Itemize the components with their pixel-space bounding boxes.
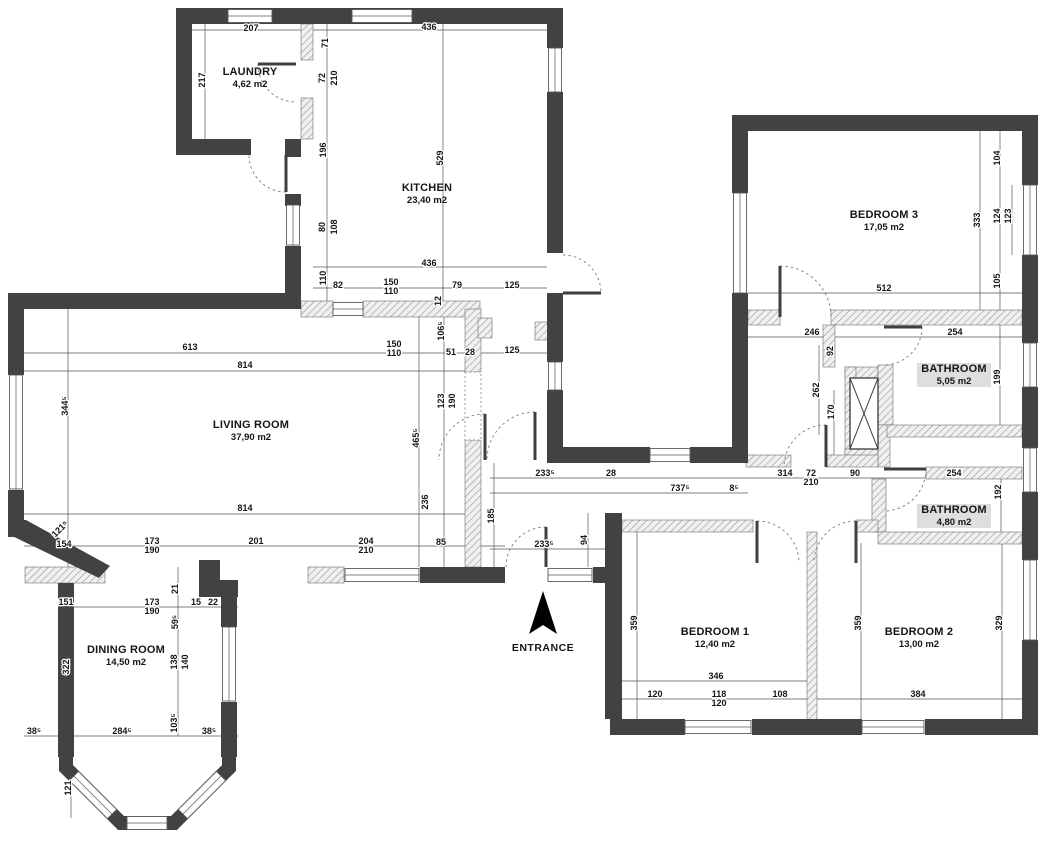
window-frame-line	[74, 776, 112, 814]
door-swing-arc	[757, 521, 799, 563]
dimension-label: 199	[992, 369, 1002, 384]
partition-wall	[308, 567, 344, 583]
dimension-label: 254	[947, 327, 962, 337]
dimension-label: 28	[606, 468, 616, 478]
dimension-label: 123	[1003, 208, 1013, 223]
dimension-label: 210	[358, 545, 373, 555]
structural-wall	[285, 139, 301, 157]
dimension-label: 185	[486, 508, 496, 523]
dimension-label: 465⁵	[411, 428, 421, 447]
dimension-label: 71	[320, 38, 330, 48]
room-area: 4,62 m2	[233, 79, 268, 90]
window	[223, 627, 236, 701]
dimension-label: 333	[972, 212, 982, 227]
window	[10, 375, 23, 489]
room-area: 4,80 m2	[937, 517, 972, 528]
dimension-label: 217	[197, 72, 207, 87]
room-name: BEDROOM 2	[885, 626, 953, 638]
dimension-label: 138	[169, 654, 179, 669]
dimension-label: 120	[647, 689, 662, 699]
structural-wall	[285, 194, 301, 206]
partition-wall	[301, 24, 313, 60]
partition-wall	[878, 365, 893, 425]
partition-wall	[878, 532, 1022, 544]
room-label-kitchen: KITCHEN23,40 m2	[402, 182, 452, 206]
window	[333, 303, 363, 316]
dimension-label: 94	[579, 535, 589, 545]
partition-wall	[746, 455, 791, 467]
structural-wall	[1022, 131, 1038, 185]
dimension-label: 125	[504, 345, 519, 355]
partition-wall	[748, 310, 780, 325]
room-label-bedroom-3: BEDROOM 317,05 m2	[850, 209, 918, 233]
dimension-label: 329	[994, 615, 1004, 630]
dimension-label: 108	[772, 689, 787, 699]
dimension-label: 124	[992, 208, 1002, 223]
window	[287, 205, 300, 245]
window	[345, 569, 419, 582]
partition-wall	[807, 532, 817, 720]
dimension-label: 233⁵	[534, 539, 553, 549]
dimension-label: 38⁵	[202, 726, 216, 736]
window	[650, 449, 690, 462]
window	[1024, 448, 1037, 492]
window	[862, 721, 924, 734]
dimension-label: 12	[433, 296, 443, 306]
dimension-label: 233⁵	[535, 468, 554, 478]
structural-wall	[1022, 492, 1038, 560]
dimension-label: 51	[446, 347, 456, 357]
door-swing-arc	[884, 327, 922, 365]
dimension-label: 384	[910, 689, 925, 699]
structural-wall	[547, 447, 650, 463]
partition-wall	[831, 310, 1022, 325]
structural-wall	[605, 513, 622, 719]
room-area: 23,40 m2	[407, 195, 447, 206]
partition-wall	[301, 98, 313, 139]
dimension-label: 151	[58, 597, 73, 607]
entrance-label: ENTRANCE	[512, 642, 574, 654]
dimension-label: 104	[992, 150, 1002, 165]
room-label-living-room: LIVING ROOM37,90 m2	[213, 419, 289, 443]
dimension-label: 108	[329, 219, 339, 234]
room-label-bedroom-2: BEDROOM 213,00 m2	[885, 626, 953, 650]
room-area: 14,50 m2	[106, 657, 146, 668]
dimension-label: 38⁵	[27, 726, 41, 736]
partition-wall	[622, 520, 753, 532]
dimension-label: 80	[317, 222, 327, 232]
structural-wall	[8, 293, 301, 309]
dimension-label: 190	[447, 393, 457, 408]
dimension-label: 123	[436, 393, 446, 408]
dimension-label: 201	[248, 536, 263, 546]
floor-plan: 2072174367172210196529801081104368215011…	[0, 0, 1046, 850]
room-label-laundry: LAUNDRY4,62 m2	[223, 66, 278, 90]
room-name: LAUNDRY	[223, 66, 278, 78]
dimension-label: 210	[803, 477, 818, 487]
door-swing-arc	[487, 412, 535, 460]
dimension-label: 196	[318, 142, 328, 157]
dimension-label: 436	[421, 22, 436, 32]
window	[352, 10, 412, 23]
window	[127, 817, 167, 830]
structural-wall	[752, 719, 862, 735]
room-area: 12,40 m2	[695, 639, 735, 650]
dimension-label: 236	[420, 494, 430, 509]
door-swing-arc	[814, 521, 856, 563]
structural-wall	[547, 293, 563, 362]
partition-wall	[465, 440, 481, 567]
structural-wall	[176, 139, 251, 155]
dimension-label: 121⁵	[50, 519, 71, 540]
dimension-label: 737⁵	[670, 483, 689, 493]
partition-wall	[887, 425, 1022, 437]
structural-wall	[547, 24, 563, 48]
room-area: 37,90 m2	[231, 432, 271, 443]
wall-opening-dotted	[465, 372, 481, 440]
room-area: 17,05 m2	[864, 222, 904, 233]
room-label-bathroom-1: BATHROOM5,05 m2	[917, 363, 991, 387]
dimension-label: 359	[853, 615, 863, 630]
room-name: LIVING ROOM	[213, 419, 289, 431]
window	[1024, 343, 1037, 387]
window	[548, 569, 592, 582]
dimension-label: 110	[387, 348, 402, 358]
dimension-label: 314	[777, 468, 792, 478]
structural-wall	[593, 567, 610, 583]
window	[1024, 560, 1037, 640]
window	[178, 771, 225, 818]
window	[1024, 185, 1037, 255]
door-swing-arc	[780, 266, 831, 317]
room-label-dining-room: DINING ROOM14,50 m2	[87, 644, 165, 668]
room-name: BATHROOM	[921, 504, 987, 516]
dimension-label: 529	[435, 150, 445, 165]
structural-wall	[176, 24, 192, 155]
dimension-label: 8⁵	[729, 483, 738, 493]
structural-wall	[199, 580, 238, 597]
structural-wall	[732, 131, 748, 193]
dimension-label: 105	[992, 273, 1002, 288]
floor-plan-svg: 2072174367172210196529801081104368215011…	[0, 0, 1046, 850]
room-area: 13,00 m2	[899, 639, 939, 650]
window	[228, 10, 272, 23]
dimension-label: 344⁵	[60, 396, 70, 415]
dimension-label: 90	[850, 468, 860, 478]
dimension-label: 246	[804, 327, 819, 337]
dimension-label: 21	[170, 584, 180, 594]
room-area: 5,05 m2	[937, 376, 972, 387]
dimension-label: 72	[317, 73, 327, 83]
partition-wall	[926, 467, 1022, 479]
dimension-label: 814	[237, 360, 252, 370]
room-name: KITCHEN	[402, 182, 452, 194]
dimension-label: 103⁵	[169, 713, 179, 732]
dimension-label: 210	[329, 70, 339, 85]
partition-wall	[826, 455, 878, 467]
partition-wall	[856, 520, 878, 532]
window-frame-line	[183, 776, 221, 814]
dimension-label: 436	[421, 258, 436, 268]
dimension-label: 59⁵	[170, 615, 180, 629]
dimension-label: 192	[993, 484, 1003, 499]
dimension-label: 284⁵	[112, 726, 131, 736]
partition-wall	[301, 301, 333, 317]
room-name: BEDROOM 3	[850, 209, 918, 221]
north-entrance-arrow-icon	[529, 591, 557, 634]
dimension-label: 359	[629, 615, 639, 630]
dimension-label: 262	[811, 382, 821, 397]
dimension-label: 207	[243, 23, 258, 33]
dimension-label: 154	[56, 539, 71, 549]
room-name: DINING ROOM	[87, 644, 165, 656]
dimension-label: 125	[504, 280, 519, 290]
dimension-label: 322	[61, 659, 71, 674]
dimension-label: 22	[208, 597, 218, 607]
room-name: BEDROOM 1	[681, 626, 749, 638]
dimension-label: 140	[180, 654, 190, 669]
dimension-label: 28	[465, 347, 475, 357]
dimension-label: 190	[144, 545, 159, 555]
door-swing-arc	[563, 255, 601, 293]
dimension-label: 121	[63, 780, 73, 795]
dimension-label: 190	[144, 606, 159, 616]
dimension-label: 170	[826, 404, 836, 419]
structural-wall	[1022, 387, 1038, 448]
window	[69, 771, 116, 818]
dimension-label: 79	[452, 280, 462, 290]
structural-wall	[610, 719, 685, 735]
dimension-label: 613	[182, 342, 197, 352]
dimension-label: 110	[384, 286, 399, 296]
room-name: BATHROOM	[921, 363, 987, 375]
dimension-label: 254	[946, 468, 961, 478]
dimension-label: 512	[876, 283, 891, 293]
dimension-label: 120	[711, 698, 726, 708]
dimension-label: 346	[708, 671, 723, 681]
door-swing-arc	[249, 155, 286, 192]
partition-wall	[363, 301, 480, 317]
structural-wall	[1022, 255, 1038, 343]
dimension-label: 15	[191, 597, 201, 607]
structural-wall	[547, 92, 563, 253]
dimension-label: 82	[333, 280, 343, 290]
dimension-label: 92	[825, 346, 835, 356]
structural-wall	[732, 115, 1038, 131]
dimension-label: 814	[237, 503, 252, 513]
dimension-label: 106⁵	[436, 321, 446, 340]
structural-wall	[420, 567, 505, 583]
structural-wall	[8, 309, 24, 375]
window	[685, 721, 751, 734]
partition-wall	[478, 318, 492, 338]
window	[734, 193, 747, 293]
structural-wall	[925, 719, 1038, 735]
window	[549, 362, 562, 390]
structural-wall	[199, 560, 220, 580]
structural-wall	[221, 595, 237, 627]
room-label-bedroom-1: BEDROOM 112,40 m2	[681, 626, 749, 650]
dimension-label: 85	[436, 537, 446, 547]
dimension-label: 110	[318, 271, 328, 286]
window	[549, 48, 562, 92]
structural-wall	[221, 702, 237, 757]
room-label-bathroom-2: BATHROOM4,80 m2	[917, 504, 991, 528]
structural-wall	[732, 293, 748, 463]
